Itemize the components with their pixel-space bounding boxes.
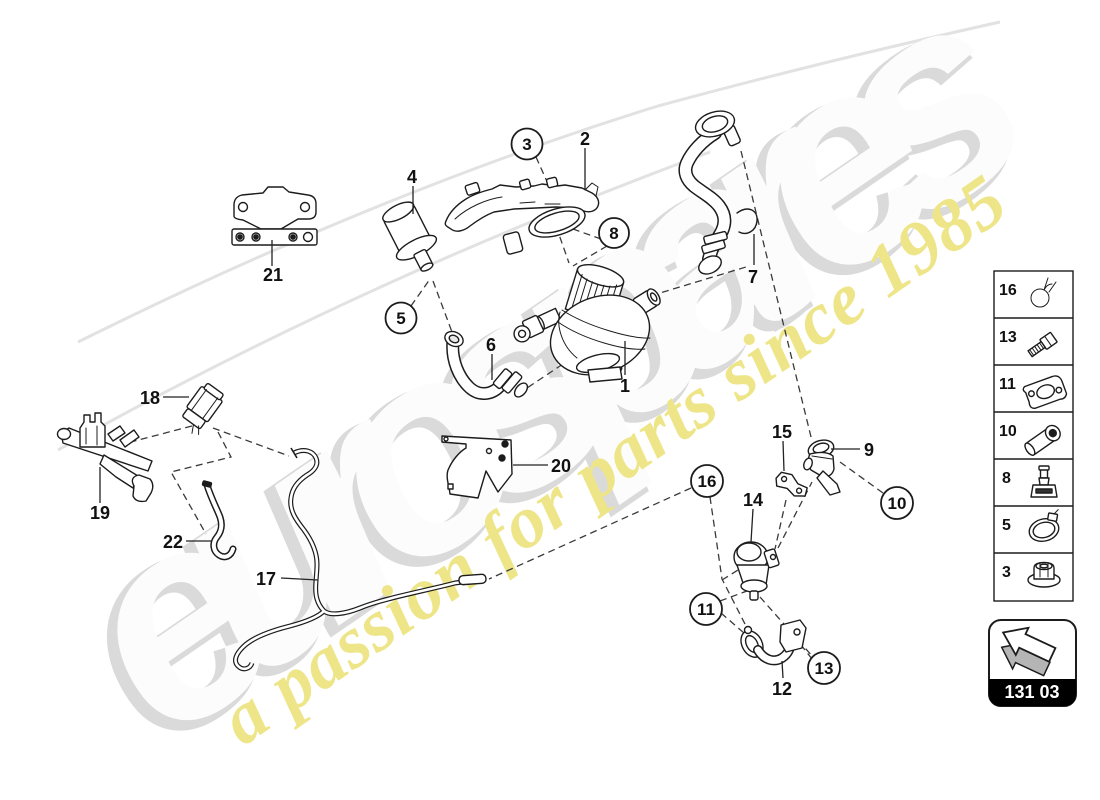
svg-text:4: 4	[407, 167, 417, 187]
svg-text:16: 16	[999, 282, 1017, 299]
svg-text:9: 9	[864, 440, 874, 460]
svg-text:17: 17	[256, 569, 276, 589]
svg-text:3: 3	[1002, 564, 1011, 581]
svg-text:11: 11	[697, 600, 715, 619]
svg-text:13: 13	[815, 659, 834, 678]
svg-text:10: 10	[999, 423, 1017, 440]
svg-text:15: 15	[772, 422, 792, 442]
svg-text:6: 6	[486, 335, 496, 355]
svg-text:10: 10	[888, 494, 907, 513]
svg-text:3: 3	[522, 135, 531, 154]
svg-text:20: 20	[551, 456, 571, 476]
svg-text:5: 5	[396, 309, 405, 328]
svg-text:21: 21	[263, 265, 283, 285]
svg-text:8: 8	[1002, 470, 1011, 487]
svg-text:11: 11	[999, 376, 1016, 393]
svg-text:18: 18	[140, 388, 160, 408]
svg-text:131 03: 131 03	[1004, 682, 1059, 702]
svg-text:16: 16	[698, 472, 717, 491]
svg-text:22: 22	[163, 532, 183, 552]
svg-text:8: 8	[609, 224, 618, 243]
svg-text:13: 13	[999, 329, 1017, 346]
svg-text:14: 14	[743, 490, 763, 510]
svg-text:5: 5	[1002, 517, 1011, 534]
svg-text:1: 1	[620, 376, 630, 396]
svg-text:12: 12	[772, 679, 792, 699]
svg-text:2: 2	[580, 129, 590, 149]
svg-text:7: 7	[748, 267, 758, 287]
svg-text:19: 19	[90, 503, 110, 523]
